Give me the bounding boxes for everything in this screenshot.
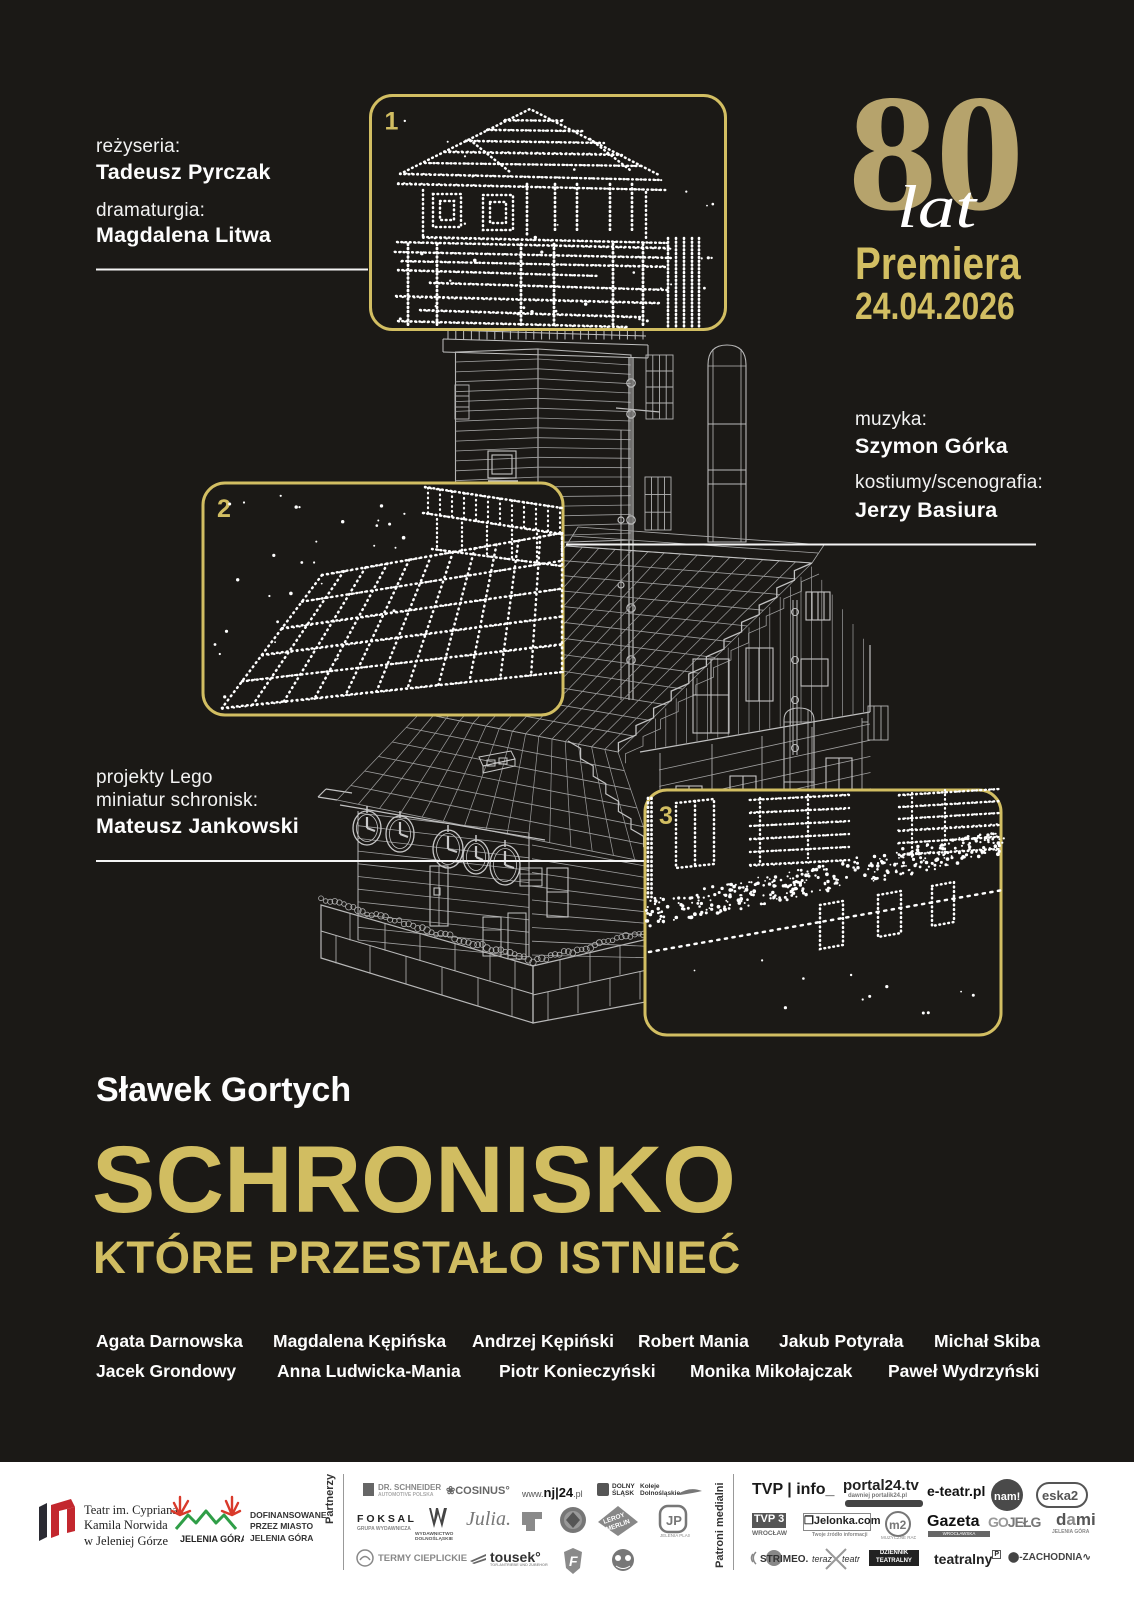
svg-text:STRIMEO.TV: STRIMEO.TV (760, 1554, 808, 1565)
svg-text:m2: m2 (889, 1518, 907, 1532)
svg-text:nam!: nam! (994, 1491, 1020, 1503)
svg-text:JELENIA GÓRA: JELENIA GÓRA (180, 1533, 244, 1544)
svg-text:JP: JP (666, 1513, 682, 1528)
svg-text:teatr: teatr (842, 1554, 860, 1564)
svg-text:MUZYCZNE RADIO: MUZYCZNE RADIO (881, 1535, 916, 1540)
svg-text:teraz: teraz (812, 1554, 833, 1564)
svg-text:2: 2 (217, 495, 231, 523)
svg-text:F: F (569, 1553, 578, 1569)
svg-text:3: 3 (659, 802, 673, 830)
svg-text:JELENIA PLAST: JELENIA PLAST (660, 1533, 690, 1538)
svg-text:1: 1 (385, 108, 399, 136)
svg-text:eska2: eska2 (1042, 1488, 1078, 1503)
